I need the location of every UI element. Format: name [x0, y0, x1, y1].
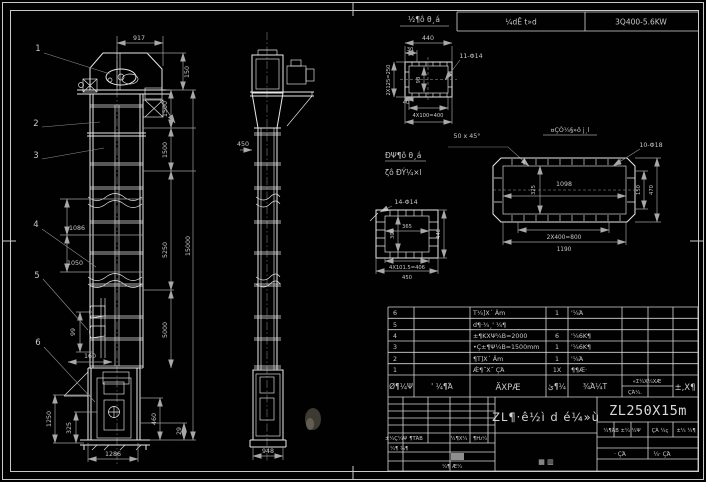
dim-917: 917: [133, 35, 145, 42]
part-row-name: Τ¼]Χ´ Äm: [472, 308, 505, 317]
dim-1500b: 1500: [162, 142, 169, 158]
dim-440: 440: [422, 35, 434, 42]
parts-header-material: ¾Ά¼Τ: [583, 382, 608, 391]
parts-header-name: ÄΧΡÆ: [495, 382, 520, 393]
part-row-name: ¶Τ]Χ´ Äm: [473, 354, 503, 363]
dim-40: 40: [403, 100, 410, 106]
chamfer-text: 50 x 45°: [454, 132, 481, 140]
dim-flange-440: 440: [436, 229, 442, 239]
dim-99: 99: [70, 328, 77, 336]
parts-header-remark: ±,Χ¶: [674, 383, 695, 393]
parts-header-no: Ø¶¼Ψ: [389, 382, 413, 391]
dim-casing-325: 325: [531, 185, 537, 195]
part-row-name: •Ç±¶Ψ¼Β=1500mm: [473, 344, 539, 351]
parts-header-weight-sub: ÇΆ¼.: [628, 389, 642, 396]
dim-5000: 5000: [162, 322, 169, 338]
cad-window: ¼dÊ t»d 3Q400-5.6KW: [0, 0, 706, 482]
screen-smudge-core: [306, 418, 314, 430]
detail-casing-title: ¤ÇÒ¼§»ô j¸l: [551, 125, 590, 134]
dim-1050: 1050: [67, 260, 83, 267]
dim-4x101: 4X101.5=406: [389, 265, 425, 271]
section-label-line1: ÐΨ¶ô θ¸á: [385, 151, 421, 160]
rev-col-3: ¼¶Χ¼: [451, 436, 468, 442]
dim-1086: 1086: [69, 225, 85, 232]
dim-325: 325: [66, 422, 73, 434]
part-row-material: '¼Ά: [571, 309, 584, 317]
highlighted-cell: [451, 453, 464, 460]
sheet-total-label: · ÇΆ: [614, 451, 626, 458]
rev-col-4: ¶Ƕ¼: [473, 436, 487, 442]
dim-30: 30: [407, 47, 414, 53]
part-row-no: 1: [393, 367, 397, 374]
product-title: ZL¶·ê½ì d é¼»ù: [492, 410, 600, 424]
dim-1286: 1286: [105, 451, 121, 458]
balloon-4: 4: [33, 220, 38, 230]
dim-4x100: 4X100=400: [412, 113, 443, 119]
dim-948: 948: [262, 448, 274, 455]
part-row-material: '¼6Κ¶: [571, 344, 591, 351]
dim-160: 160: [84, 353, 96, 360]
dim-450: 450: [237, 141, 249, 148]
part-row-qty: 1: [555, 344, 559, 351]
dim-98: 98: [416, 77, 422, 84]
dim-300: 300: [390, 229, 396, 239]
dim-1190: 1190: [557, 247, 572, 253]
dim-150: 150: [184, 66, 191, 78]
header-note: ¼dÊ t»d: [505, 18, 537, 27]
balloon-2: 2: [33, 119, 38, 129]
part-row-name: Ǽ¶˝Χ˝ ÇΆ: [473, 365, 505, 374]
dim-29: 29: [176, 427, 183, 435]
rev-col-1: ±¼Ç¼Ψ: [385, 436, 407, 442]
drawing-number: ZL250X15m: [609, 403, 687, 419]
dim-2x400: 2X400=800: [547, 235, 582, 241]
part-row-no: 4: [393, 333, 397, 340]
part-row-name: d¶·¾¸' ¼¶: [473, 322, 506, 329]
dim-365: 365: [402, 224, 412, 230]
signature-label-1: ¼¶ ¾¶: [390, 446, 408, 452]
dim-460: 460: [151, 413, 158, 425]
part-row-no: 6: [393, 310, 397, 317]
part-row-material: '¼6Κ¶: [571, 333, 591, 340]
balloon-5: 5: [34, 271, 39, 281]
part-row-material: '¼Ά: [571, 355, 584, 363]
stamp-characters: ▦ ▥: [538, 458, 553, 466]
balloon-1: 1: [35, 44, 40, 54]
rev-col-2: ¶ΤΆΒ: [409, 435, 423, 442]
scale-label: ±¼ ¼¶: [676, 428, 695, 434]
part-row-no: 5: [393, 322, 397, 329]
sheet-number-label: ¼· ÇΆ: [653, 451, 670, 458]
part-row-qty: 1: [555, 356, 559, 363]
drawing-background: [0, 0, 706, 482]
section-label-line2: ζô ÐÝ¼×l: [385, 168, 422, 177]
dim-15000: 15000: [185, 236, 192, 256]
dim-flange-450: 450: [402, 275, 412, 281]
dim-1250: 1250: [46, 411, 53, 427]
dim-1098: 1098: [556, 181, 572, 188]
part-row-qty: 1: [555, 310, 559, 317]
part-row-no: 2: [393, 356, 397, 363]
detail-outlet-holes: 11-Φ14: [459, 53, 482, 60]
detail-flange-holes: 14-Φ14: [394, 199, 417, 206]
cad-drawing-canvas: ¼dÊ t»d 3Q400-5.6KW: [0, 0, 706, 482]
parts-header-qty: ئ¶¼: [548, 382, 567, 391]
dim-casing-150: 150: [636, 185, 642, 195]
part-row-qty: 6: [555, 333, 559, 340]
dim-casing-470: 470: [649, 185, 655, 195]
signature-label-2: ¼¶ Æ¼: [442, 464, 462, 470]
mass-label: ÇΆ ¼ç: [652, 427, 669, 434]
balloon-6: 6: [35, 338, 40, 348]
dim-5250: 5250: [162, 242, 169, 258]
parts-header-weight: «Σ¼Χ¼ΧÆ: [633, 379, 662, 385]
stage-mark-label: ¼¶ΆΒ ±¼ ¼Ψ: [603, 427, 640, 434]
header-spec: 3Q400-5.6KW: [615, 18, 667, 27]
parts-header-code: ' ¼¶Ά: [431, 382, 453, 391]
part-row-qty: 1X: [553, 367, 562, 374]
detail-outlet-title: ½¶ô θ¸á: [408, 15, 440, 24]
balloon-3: 3: [33, 151, 38, 161]
part-row-name: ±¶ΚΧΨ¼Β=2000: [473, 333, 527, 340]
dim-1500a: 1500: [162, 101, 169, 117]
part-row-material: ¶¶Æ·: [571, 367, 587, 374]
part-row-no: 3: [393, 344, 397, 351]
dim-2x125: 2X125=250: [386, 64, 392, 95]
detail-casing-holes: 10-Φ18: [639, 142, 662, 149]
